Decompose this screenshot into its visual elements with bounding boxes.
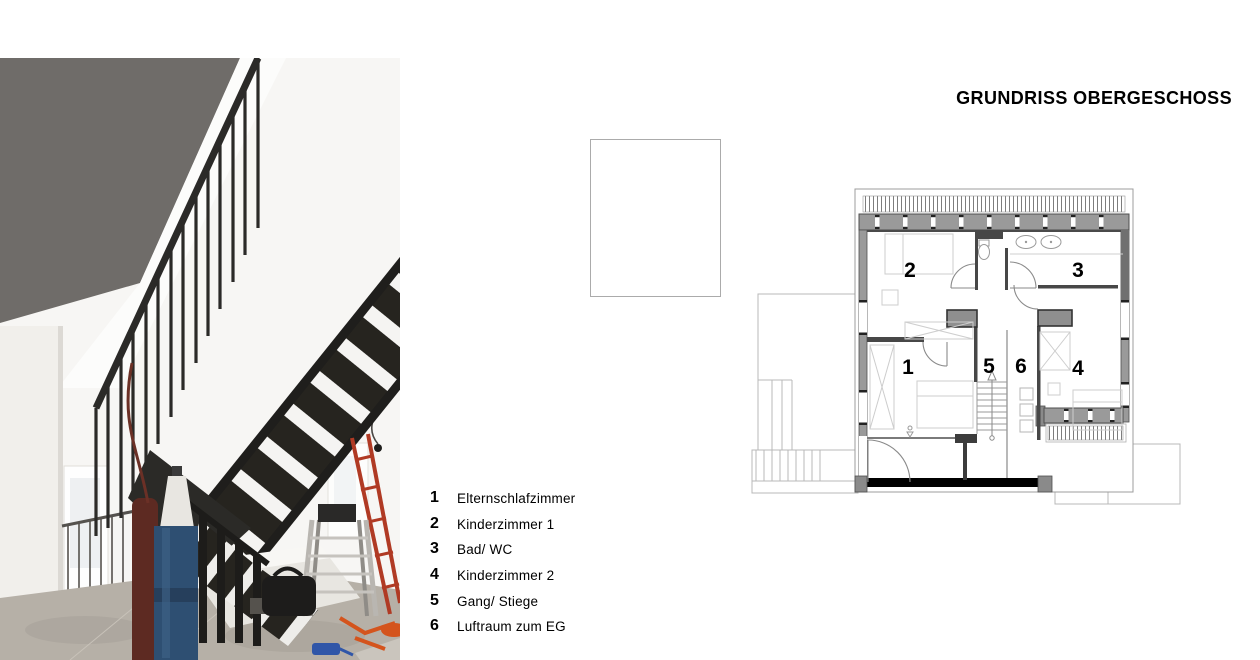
empty-frame: [590, 139, 721, 297]
legend-item-label: Gang/ Stiege: [457, 592, 538, 610]
floor-plan-drawing: 2 3 1 5 6 4: [748, 182, 1188, 512]
legend-row: 3 Bad/ WC: [430, 540, 575, 566]
legend-item-number: 3: [430, 540, 457, 558]
west-wall: [859, 230, 867, 477]
room-legend: 1 Elternschlafzimmer 2 Kinderzimmer 1 3 …: [430, 489, 575, 643]
construction-photo: [0, 58, 400, 660]
room4-window-band: [1036, 406, 1126, 442]
floor-plan: 2 3 1 5 6 4: [748, 182, 1188, 512]
roof-hatch-top: [863, 196, 1125, 212]
legend-item-number: 1: [430, 489, 457, 507]
legend-item-label: Kinderzimmer 1: [457, 515, 554, 533]
north-wall-windows: [859, 214, 1129, 232]
room-label-4: 4: [1072, 357, 1084, 380]
page-title: GRUNDRISS OBERGESCHOSS: [956, 88, 1232, 109]
legend-row: 4 Kinderzimmer 2: [430, 566, 575, 592]
legend-item-label: Kinderzimmer 2: [457, 566, 554, 584]
legend-row: 1 Elternschlafzimmer: [430, 489, 575, 515]
room6-skylights: [1020, 388, 1033, 432]
legend-item-number: 5: [430, 592, 457, 610]
legend-item-label: Bad/ WC: [457, 540, 512, 558]
legend-item-number: 4: [430, 566, 457, 584]
legend-row: 5 Gang/ Stiege: [430, 592, 575, 618]
room-label-5: 5: [983, 355, 995, 378]
room-label-3: 3: [1072, 259, 1084, 282]
legend-item-number: 6: [430, 617, 457, 635]
legend-item-number: 2: [430, 515, 457, 533]
legend-row: 2 Kinderzimmer 1: [430, 515, 575, 541]
legend-item-label: Elternschlafzimmer: [457, 489, 575, 507]
room-label-1: 1: [902, 356, 914, 379]
presentation-page: GRUNDRISS OBERGESCHOSS 1 Elternschlafzim…: [0, 0, 1260, 660]
legend-item-label: Luftraum zum EG: [457, 617, 566, 635]
room-label-6: 6: [1015, 355, 1027, 378]
photo-illustration: [0, 58, 400, 660]
legend-row: 6 Luftraum zum EG: [430, 617, 575, 643]
room-label-2: 2: [904, 259, 916, 282]
